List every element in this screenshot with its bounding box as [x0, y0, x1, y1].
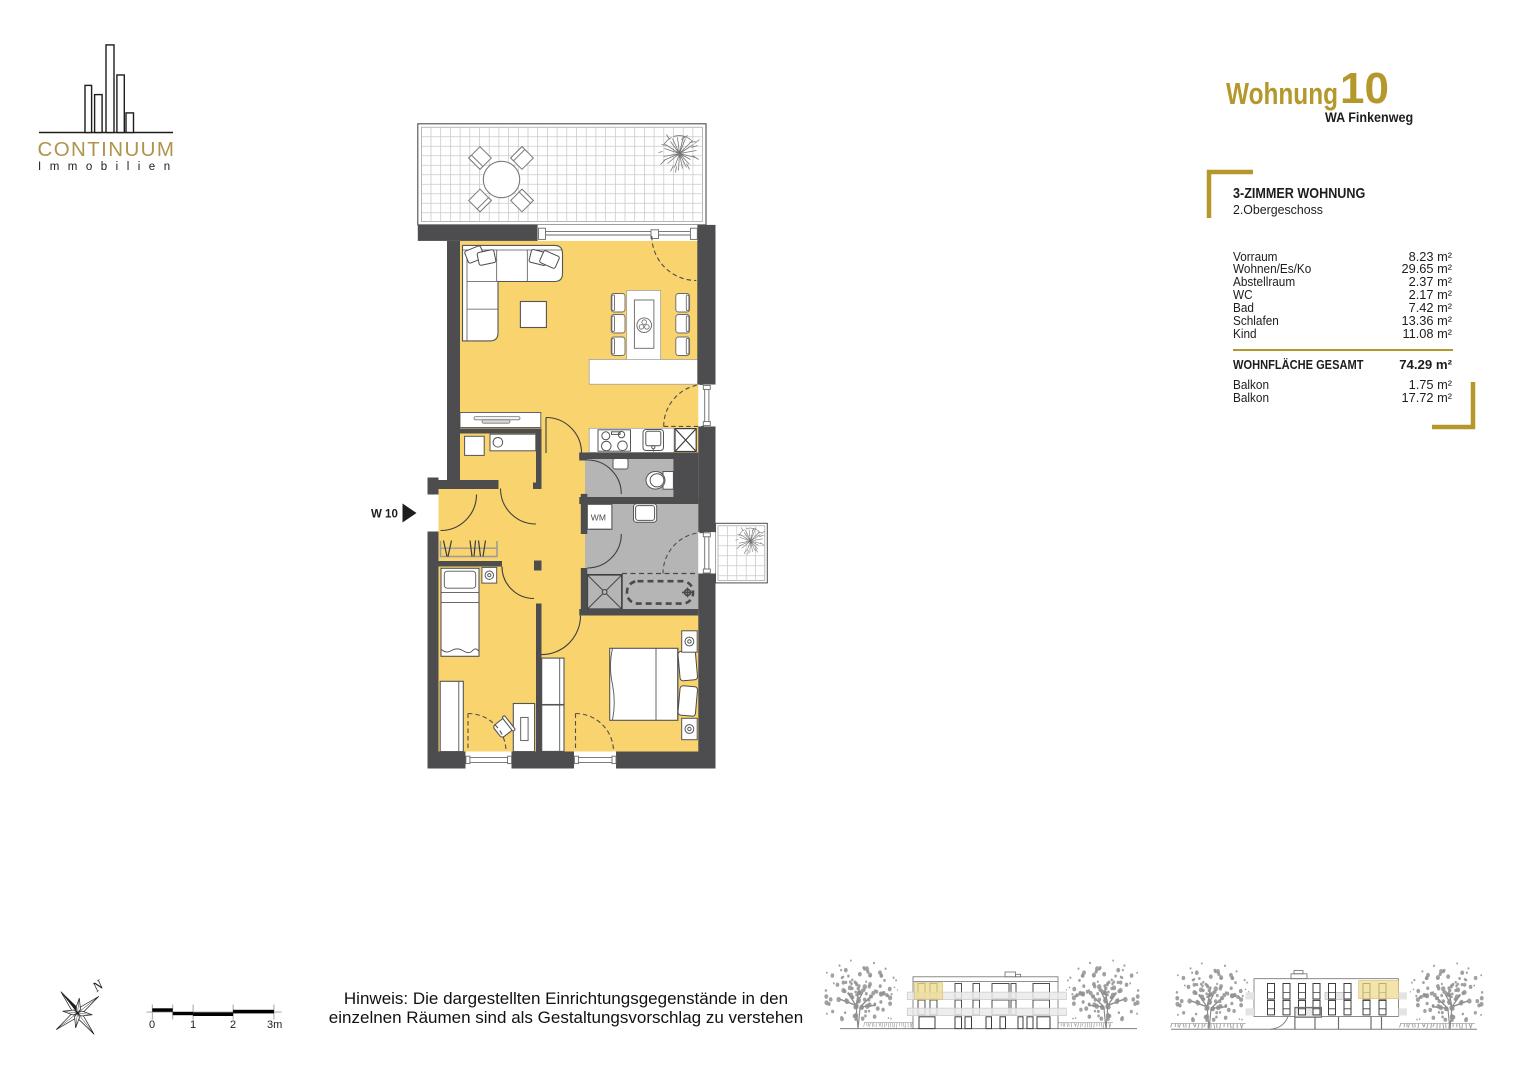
svg-text:Immobilien: Immobilien — [38, 161, 179, 173]
svg-text:0: 0 — [149, 1019, 155, 1031]
svg-text:3m: 3m — [267, 1019, 282, 1031]
svg-text:WM: WM — [591, 513, 606, 523]
svg-text:1: 1 — [190, 1019, 196, 1031]
svg-text:2: 2 — [230, 1019, 236, 1031]
svg-text:CONTINUUM: CONTINUUM — [38, 138, 176, 161]
svg-text:W 10: W 10 — [371, 509, 398, 521]
svg-text:N: N — [89, 978, 107, 997]
